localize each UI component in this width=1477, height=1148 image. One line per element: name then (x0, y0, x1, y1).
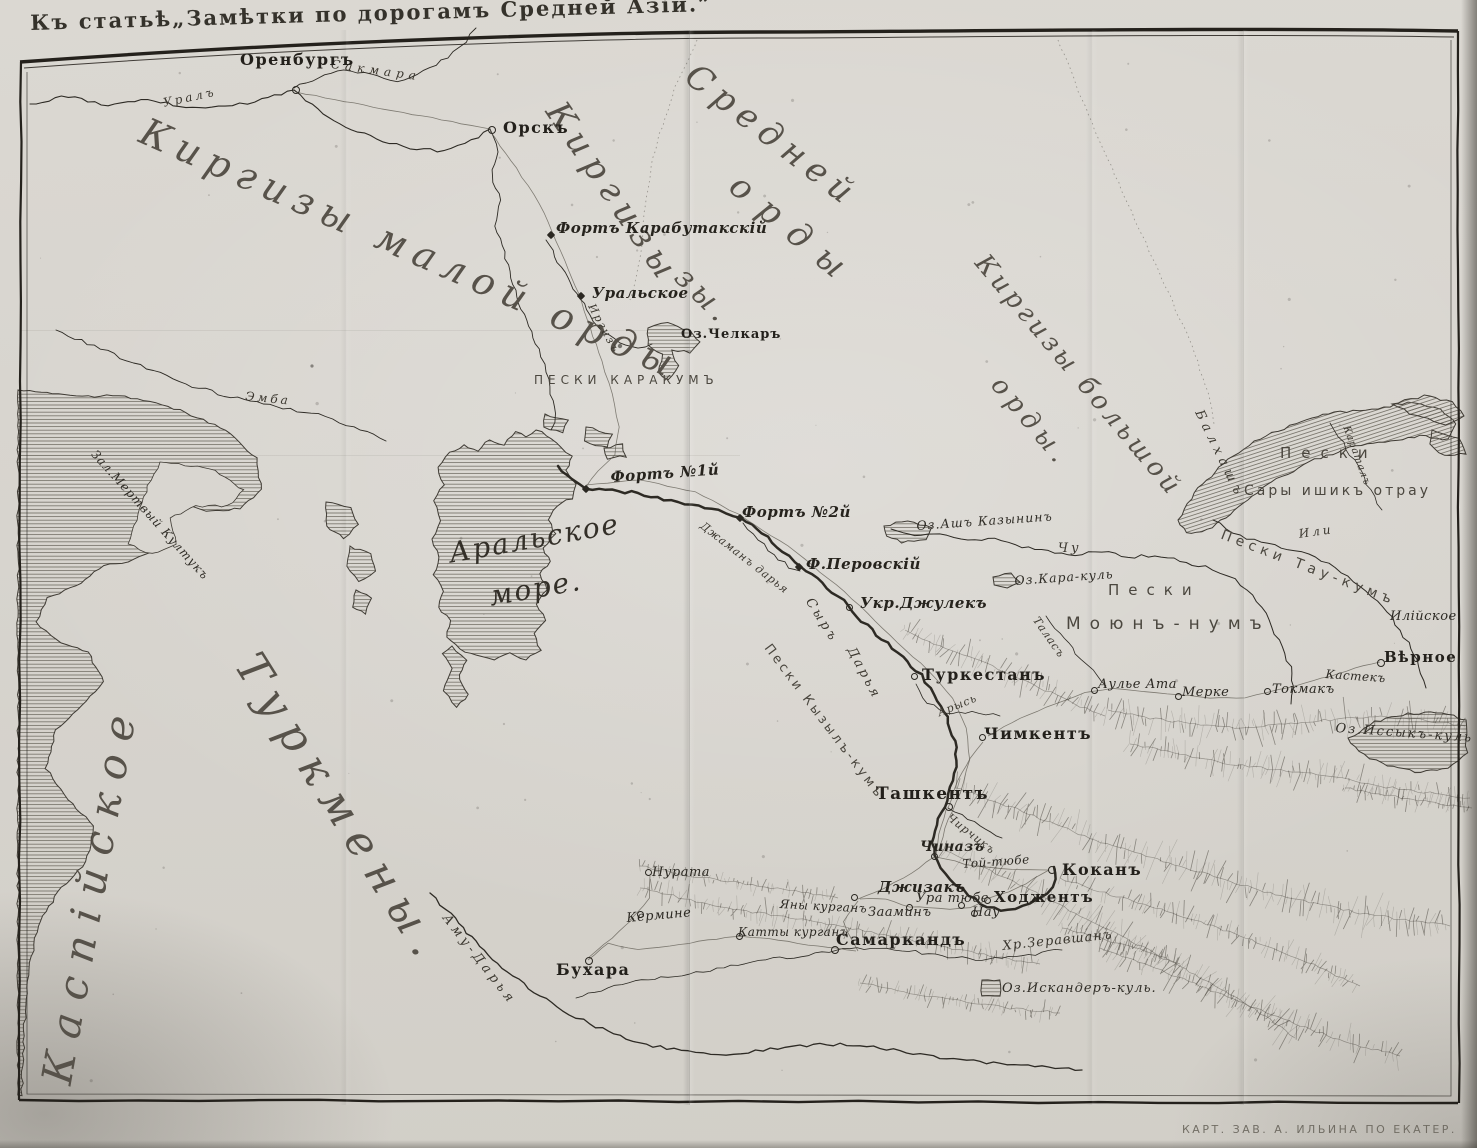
label-desert-sary-ishik-otrau: Сары ишикъ отрау (1244, 484, 1431, 498)
marker-kermine (637, 911, 644, 918)
label-town-orsk: Орскъ (503, 120, 569, 136)
label-town-orenburg: Оренбургъ (240, 52, 355, 68)
label-fort-no2: Фортъ №2й (742, 505, 851, 520)
marker-merke (1175, 693, 1182, 700)
label-fort-karabutak: Фортъ Карабутакскій (556, 221, 767, 236)
label-fort-perovsky: Ф.Перовскій (806, 557, 921, 572)
label-town-chimkent: Чимкентъ (984, 726, 1092, 742)
marker-samarkand (831, 946, 839, 954)
label-river-chu: Чу (1058, 542, 1082, 555)
label-town-nurata: Нурата (652, 866, 710, 879)
label-desert-karakum: ПЕСКИ КАРАКУМЪ (534, 374, 719, 386)
label-town-khodzhent: Ходжентъ (994, 890, 1094, 905)
scanned-map-page: Къ статьѣ„Замѣтки по дорогамъ Средней Аз… (0, 0, 1477, 1148)
label-town-turkestan: Туркестанъ (922, 667, 1046, 683)
marker-nurata (645, 869, 652, 876)
label-town-dzhizak: Джизакъ (878, 880, 966, 895)
label-town-aulie-ata: Аулье Ата (1098, 678, 1177, 691)
marker-chinaz (931, 853, 938, 860)
marker-aulie-ata (1091, 687, 1098, 694)
marker-tashkent (945, 803, 953, 811)
label-town-tashkent: Ташкентъ (876, 786, 989, 803)
label-town-tokmak: Токмакъ (1272, 683, 1335, 696)
marker-khodzhent (984, 897, 991, 904)
scan-edge-shadow (0, 1140, 1477, 1148)
label-town-vernoe: Вѣрное (1384, 650, 1457, 665)
label-lake-chelkar: Оз.Челкаръ (681, 328, 781, 341)
label-lake-iskanderkul: Оз.Искандеръ-куль. (1002, 982, 1157, 995)
label-town-merke: Мерке (1182, 686, 1229, 699)
label-town-iliyskoe: Илійское (1390, 610, 1457, 623)
marker-tokmak (1264, 688, 1271, 695)
marker-turkestan (911, 673, 918, 680)
marker-dzhulek (846, 604, 853, 611)
printer-imprint: КАРТ. ЗАВ. А. ИЛЬИНА ПО ЕКАТЕР. (1182, 1124, 1457, 1135)
marker-nau (971, 910, 978, 917)
marker-chimkent (979, 734, 986, 741)
label-fort-uralskoe: Уральское (592, 286, 689, 301)
label-town-bukhara: Бухара (556, 962, 630, 978)
label-town-zaamin: Зааминъ (868, 906, 931, 919)
marker-bukhara (585, 957, 593, 965)
label-town-chinaz: Чиназъ (920, 840, 984, 854)
marker-orsk (488, 126, 496, 134)
label-town-kokan: Коканъ (1062, 862, 1142, 878)
label-town-katty-kurgan: Катты курганъ (738, 926, 848, 938)
marker-katty-kurgan (736, 933, 743, 940)
marker-zaamin (906, 904, 913, 911)
label-desert-moyunkum: Пески (1108, 583, 1201, 598)
marker-kokan (1048, 866, 1056, 874)
scan-edge-shadow (1461, 0, 1477, 1148)
marker-dzhizak (851, 894, 858, 901)
label-fort-dzhulek: Укр.Джулекъ (860, 596, 987, 611)
marker-ura-tube (958, 902, 965, 909)
label-town-samarkand: Самаркандъ (836, 932, 966, 948)
label-desert-moyunkum: Моюнъ-нумъ (1066, 616, 1271, 633)
marker-vernoe (1377, 659, 1385, 667)
marker-orenburg (292, 86, 300, 94)
